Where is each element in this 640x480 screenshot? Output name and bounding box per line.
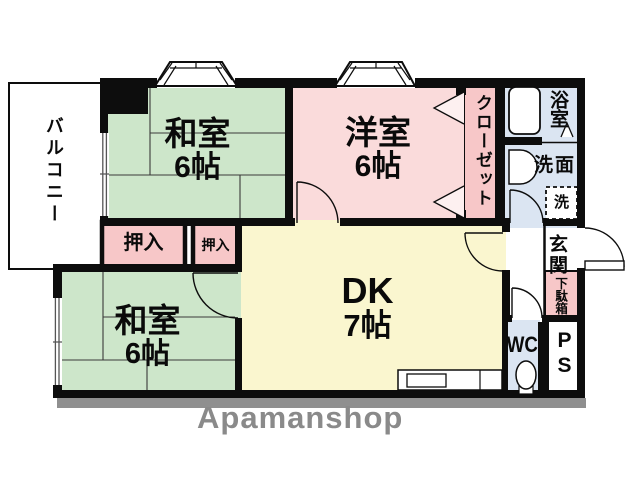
washitsu-top-name: 和室	[105, 117, 290, 152]
ps-label: PS	[553, 329, 575, 379]
washitsu-bottom-size: 6帖	[62, 339, 233, 369]
oshiire-right-label: 押入	[192, 238, 239, 253]
bay-window-youshitsu	[335, 62, 415, 86]
washer-label: 洗	[546, 195, 577, 211]
floorplan: バルコニー 和室 6帖 洋室 6帖 クローゼット 浴室 洗面 洗 玄関 下駄箱 …	[0, 0, 640, 480]
dk-size: 7帖	[241, 310, 494, 343]
dk-name: DK	[241, 272, 494, 310]
wc-door	[512, 288, 542, 318]
washitsu-top-size: 6帖	[105, 152, 290, 184]
genkan-label: 玄関	[546, 234, 566, 276]
room-bath	[505, 88, 580, 145]
bath-label: 浴室	[547, 90, 567, 128]
getabako-label: 下駄箱	[553, 277, 566, 315]
bay-window-washitsu	[155, 62, 237, 86]
closet-label: クローゼット	[473, 94, 491, 208]
youshitsu-size: 6帖	[290, 151, 466, 183]
wc-label: WC	[507, 333, 538, 356]
entrance-door	[576, 228, 624, 270]
balcony-label: バルコニー	[44, 116, 63, 226]
oshiire-left-label: 押入	[101, 233, 186, 254]
youshitsu-name: 洋室	[290, 116, 466, 151]
senmen-label: 洗面	[534, 156, 576, 176]
washitsu-bottom-name: 和室	[62, 304, 233, 339]
watermark: Apamanshop	[197, 400, 403, 436]
